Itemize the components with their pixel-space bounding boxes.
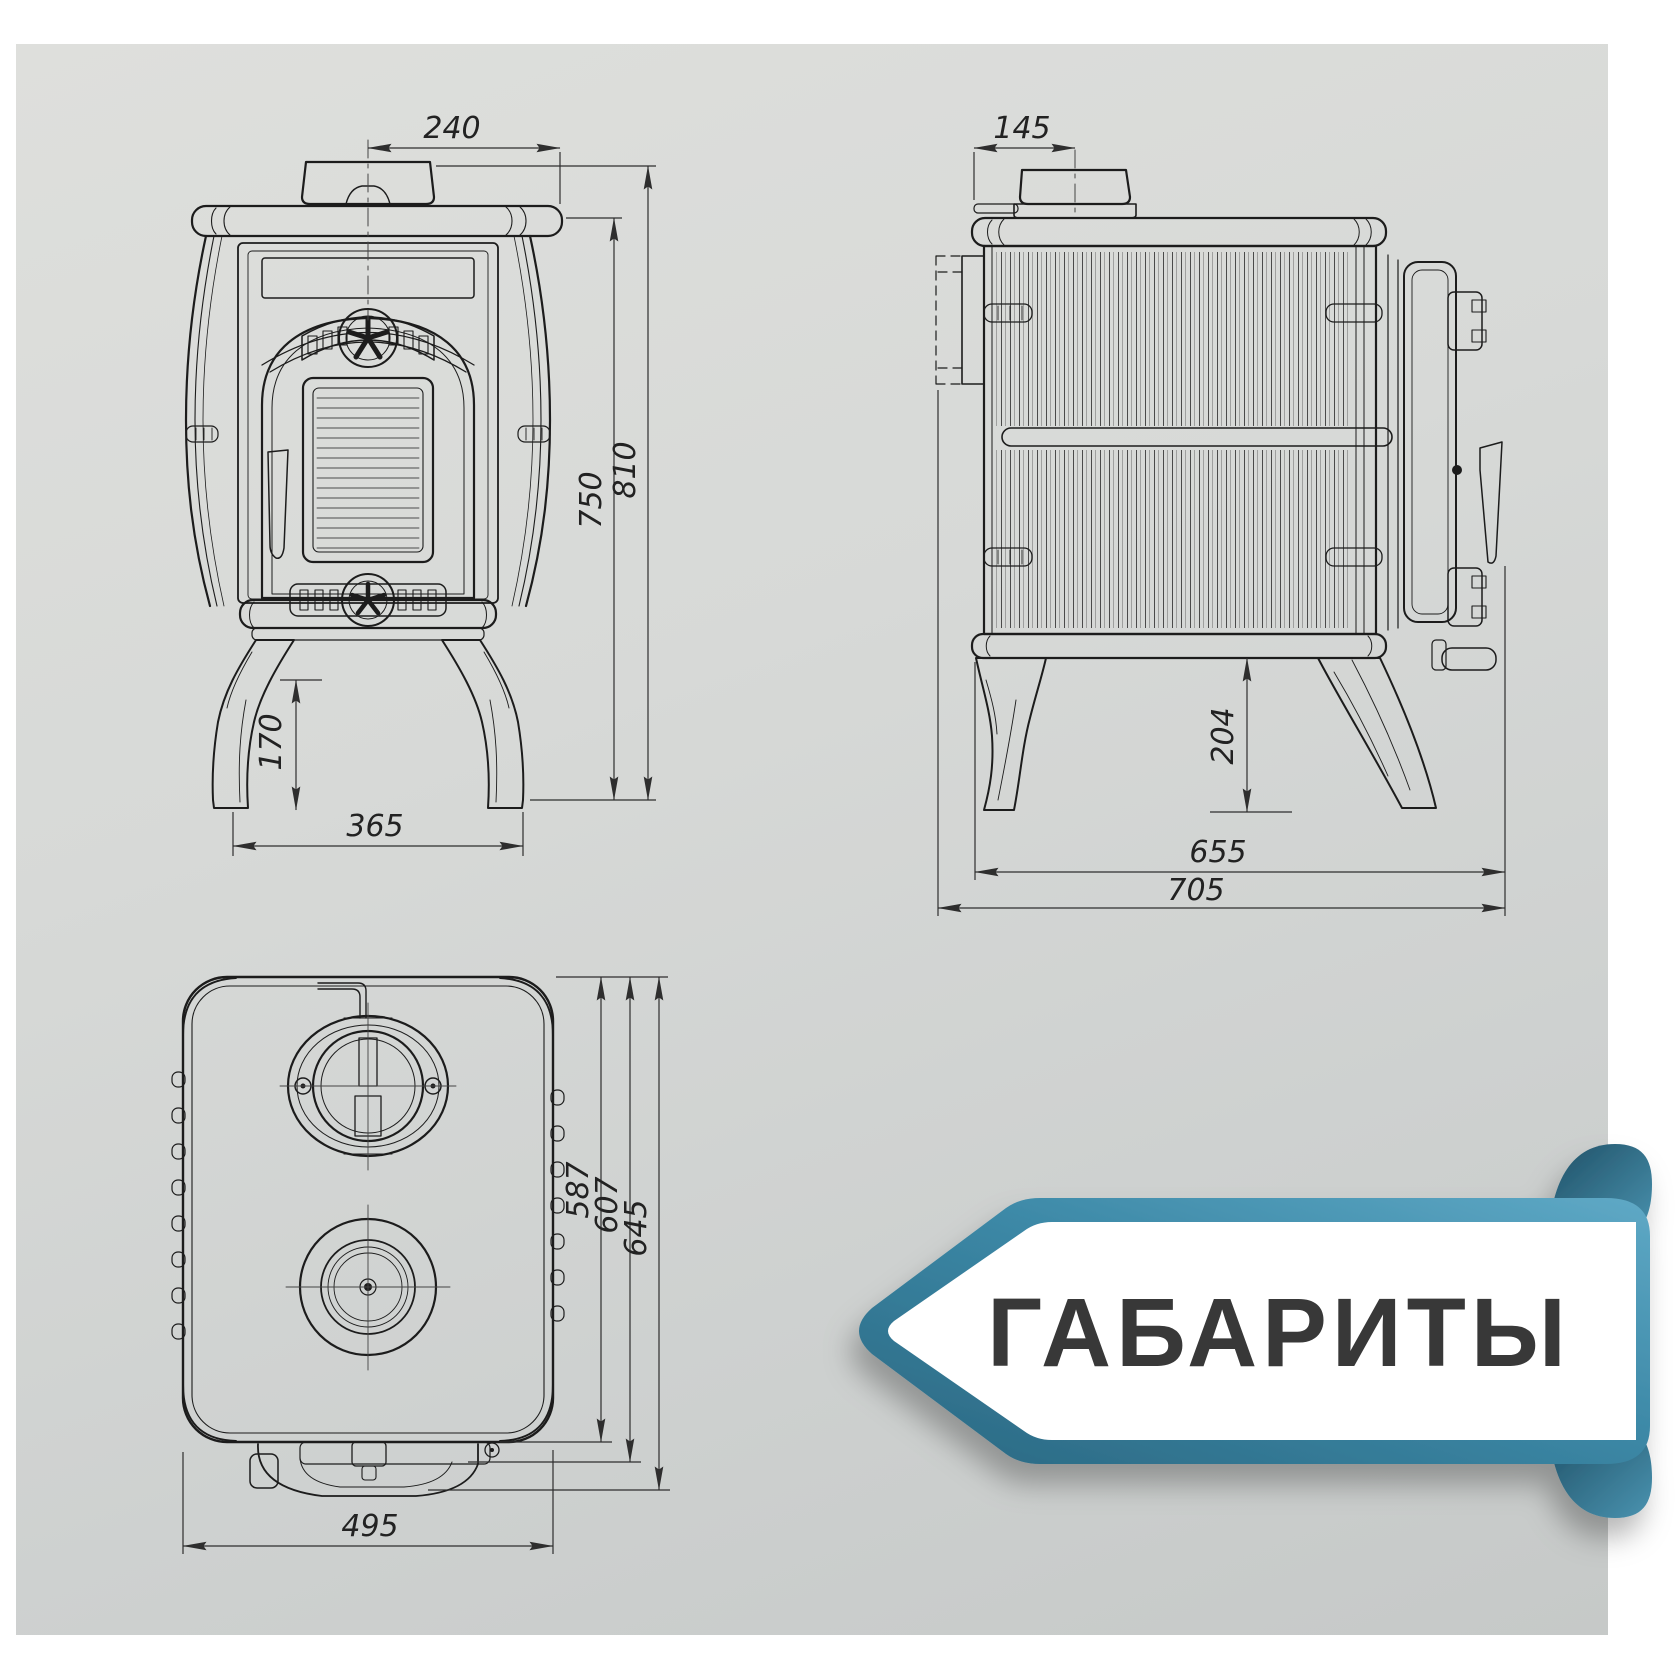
side-rear-flue bbox=[936, 256, 984, 384]
dim-front-base-width: 365 bbox=[346, 809, 403, 844]
dim-top-total-depth: 645 bbox=[619, 1199, 654, 1256]
dim-front-total-height: 810 bbox=[608, 441, 643, 498]
side-door-handle bbox=[1480, 442, 1502, 563]
front-bottom-rail bbox=[240, 600, 496, 628]
page-background: 240 750 810 170 365 bbox=[0, 0, 1680, 1680]
front-view-drawing bbox=[186, 140, 562, 808]
dim-side-body-depth: 655 bbox=[1189, 835, 1246, 870]
dim-front-leg-height: 170 bbox=[254, 713, 289, 770]
side-leg-front bbox=[1318, 658, 1436, 808]
top-chimney-collar bbox=[280, 1003, 456, 1170]
front-door-handle bbox=[268, 450, 288, 558]
top-door-assembly bbox=[250, 1442, 499, 1496]
dim-side-total-depth: 705 bbox=[1167, 873, 1224, 908]
banner-title: ГАБАРИТЫ bbox=[987, 1278, 1571, 1387]
dim-side-chimney-offset: 145 bbox=[993, 111, 1050, 146]
side-hinge-top bbox=[1448, 292, 1482, 350]
top-view-dimensions: 587 607 645 495 bbox=[183, 977, 670, 1554]
front-leg-right bbox=[442, 640, 523, 808]
side-mid-rail bbox=[1002, 428, 1392, 446]
side-top-plate bbox=[972, 218, 1386, 246]
top-view-drawing bbox=[172, 977, 564, 1496]
front-top-plate bbox=[192, 206, 562, 236]
top-cook-plate bbox=[286, 1205, 450, 1370]
top-handle bbox=[318, 983, 366, 1018]
technical-drawing: 240 750 810 170 365 bbox=[0, 0, 1680, 1680]
front-body-side-right bbox=[526, 236, 550, 606]
dim-front-body-height: 750 bbox=[574, 471, 609, 528]
dim-top-width: 495 bbox=[341, 1509, 398, 1544]
front-face-frame bbox=[238, 243, 498, 603]
front-body-side-left bbox=[186, 236, 210, 606]
front-view-dimensions: 240 750 810 170 365 bbox=[233, 111, 656, 856]
dim-front-chimney-width: 240 bbox=[423, 111, 480, 146]
dim-side-leg-clearance: 204 bbox=[1206, 707, 1241, 764]
dimensions-banner: ГАБАРИТЫ bbox=[859, 1144, 1652, 1518]
front-window bbox=[303, 378, 433, 562]
side-bottom-plate bbox=[972, 634, 1386, 658]
